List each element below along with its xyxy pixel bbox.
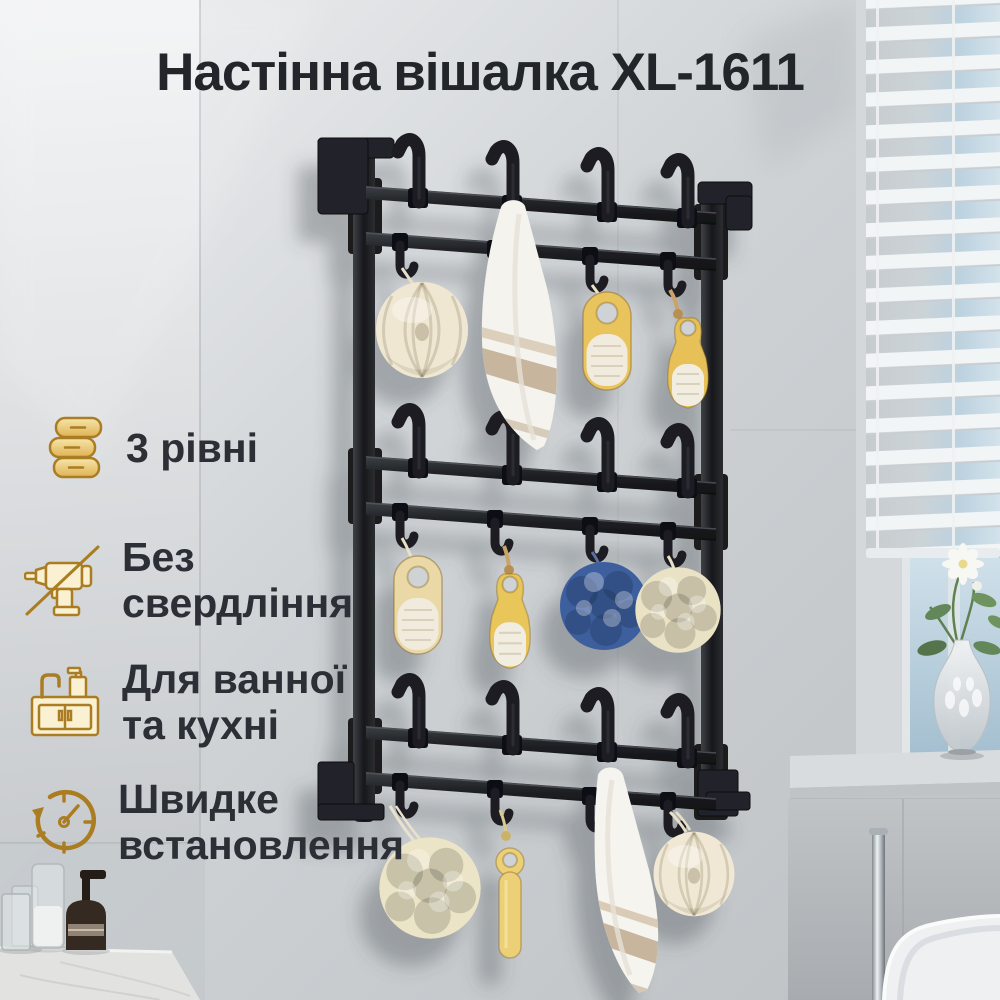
feature-label: Швидке — [118, 776, 404, 822]
pleated-sponge — [376, 282, 468, 378]
left-rail — [353, 146, 375, 822]
oval-brush — [394, 556, 442, 654]
towel-stack-icon — [44, 416, 106, 480]
feature-levels: 3 рівні — [44, 416, 258, 480]
glass-cup — [2, 894, 30, 950]
loofah-blue — [560, 562, 648, 650]
feature-label: 3 рівні — [126, 425, 258, 471]
right-rail — [701, 183, 723, 813]
feature-label: Без — [122, 534, 353, 580]
shower-pipe — [872, 832, 885, 1000]
feature-no-drilling: Без свердління — [24, 534, 353, 626]
paddle-brush — [496, 848, 524, 958]
feature-label: Для ванної — [122, 656, 346, 702]
bath-area — [788, 799, 1000, 1000]
feature-label: свердління — [122, 580, 353, 626]
no-drill-icon — [24, 543, 102, 617]
feature-label: встановлення — [118, 822, 404, 868]
page-title: Настінна вішалка XL-1611 — [0, 42, 960, 103]
feature-quick-install: Швидке встановлення — [26, 776, 404, 868]
oval-brush — [583, 292, 631, 390]
feature-label: та кухні — [122, 702, 346, 748]
pleated-sponge — [654, 832, 735, 916]
sink-icon — [30, 665, 102, 739]
feature-bath-kitchen: Для ванної та кухні — [30, 656, 346, 748]
quick-install-icon — [26, 786, 98, 858]
soap-liquid — [34, 906, 62, 946]
loofah-cream — [635, 567, 720, 652]
product-marketing-image: Настінна вішалка XL-1611 3 рівні — [0, 0, 1000, 1000]
